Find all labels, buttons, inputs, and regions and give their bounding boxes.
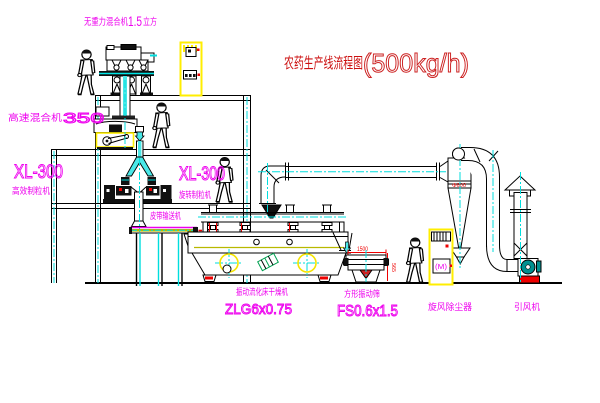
svg-text:立方: 立方 <box>143 16 157 28</box>
svg-text:XL-300: XL-300 <box>179 164 225 185</box>
svg-text:1500: 1500 <box>357 247 369 253</box>
svg-text:高速混合机: 高速混合机 <box>8 112 63 124</box>
svg-text:FS0.6x1.5: FS0.6x1.5 <box>337 303 398 320</box>
svg-text:旋转制粒机: 旋转制粒机 <box>179 189 211 200</box>
svg-text:565: 565 <box>390 263 396 272</box>
svg-text:(500kg/h): (500kg/h) <box>363 48 469 78</box>
svg-text:350: 350 <box>63 110 104 127</box>
svg-text:旋风除尘器: 旋风除尘器 <box>428 301 472 312</box>
svg-text:ZLG6x0.75: ZLG6x0.75 <box>225 301 292 318</box>
svg-text:引风机: 引风机 <box>514 301 540 312</box>
svg-text:1.5: 1.5 <box>128 13 142 29</box>
svg-text:Φ600: Φ600 <box>452 183 466 189</box>
svg-text:方形振动筛: 方形振动筛 <box>344 288 380 299</box>
svg-text:皮带输送机: 皮带输送机 <box>150 210 181 221</box>
svg-text:无重力混合机: 无重力混合机 <box>84 16 128 28</box>
svg-text:振动流化床干燥机: 振动流化床干燥机 <box>236 286 288 297</box>
svg-text:高效制粒机: 高效制粒机 <box>12 185 50 196</box>
svg-text:(M): (M) <box>435 264 447 271</box>
svg-text:XL-300: XL-300 <box>14 162 63 183</box>
svg-text:农药生产线流程图: 农药生产线流程图 <box>284 55 363 72</box>
